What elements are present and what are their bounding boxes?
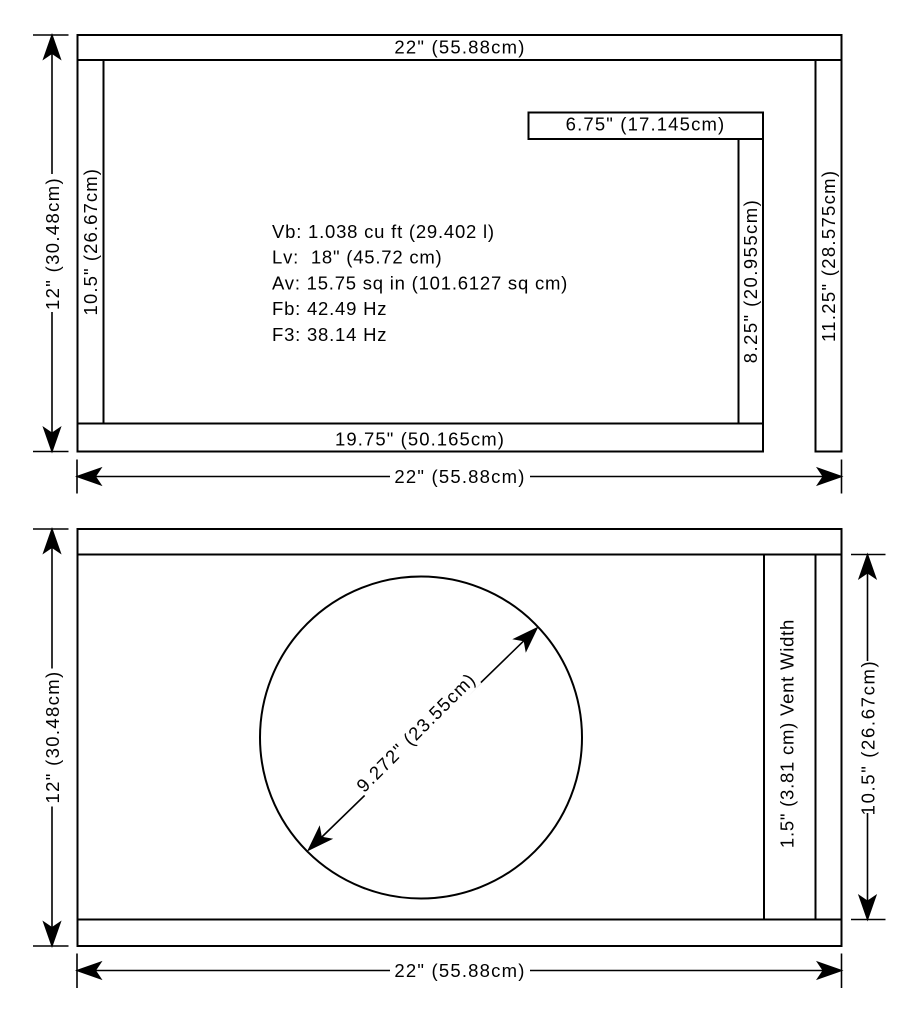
svg-text:1.5" (3.81 cm) Vent Width: 1.5" (3.81 cm) Vent Width: [777, 619, 798, 848]
svg-text:Av: 15.75 sq in (101.6127 sq c: Av: 15.75 sq in (101.6127 sq cm): [272, 272, 568, 293]
svg-text:8.25" (20.955cm): 8.25" (20.955cm): [740, 199, 761, 363]
svg-text:10.5" (26.67cm): 10.5" (26.67cm): [80, 168, 101, 316]
svg-text:22" (55.88cm): 22" (55.88cm): [394, 960, 525, 981]
svg-text:Fb: 42.49 Hz: Fb: 42.49 Hz: [272, 298, 387, 319]
svg-text:Vb: 1.038 cu ft (29.402 l): Vb: 1.038 cu ft (29.402 l): [272, 221, 495, 242]
svg-text:F3: 38.14 Hz: F3: 38.14 Hz: [272, 324, 387, 345]
svg-text:19.75" (50.165cm): 19.75" (50.165cm): [335, 428, 505, 449]
svg-text:10.5" (26.67cm): 10.5" (26.67cm): [858, 660, 879, 816]
svg-text:6.75" (17.145cm): 6.75" (17.145cm): [566, 114, 726, 135]
svg-text:12" (30.48cm): 12" (30.48cm): [42, 177, 63, 310]
svg-text:22" (55.88cm): 22" (55.88cm): [394, 466, 525, 487]
svg-text:22" (55.88cm): 22" (55.88cm): [394, 37, 525, 58]
svg-text:11.25" (28.575cm): 11.25" (28.575cm): [818, 170, 839, 342]
svg-text:Lv: 18" (45.72 cm): Lv: 18" (45.72 cm): [272, 247, 442, 268]
svg-text:12" (30.48cm): 12" (30.48cm): [42, 670, 63, 803]
